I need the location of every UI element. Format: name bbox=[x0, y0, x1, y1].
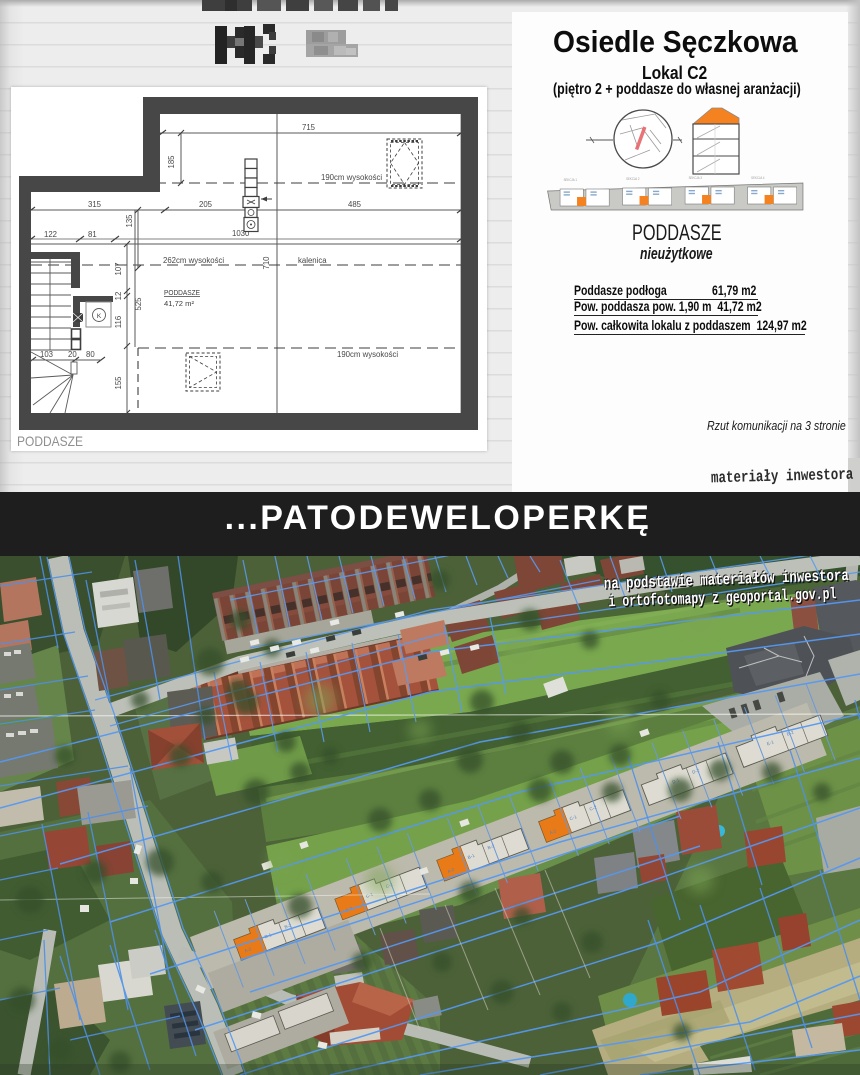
svg-text:190cm wysokości: 190cm wysokości bbox=[321, 173, 382, 182]
svg-text:PODDASZE: PODDASZE bbox=[164, 288, 200, 297]
svg-text:525: 525 bbox=[134, 297, 143, 311]
svg-text:185: 185 bbox=[167, 155, 176, 169]
svg-text:715: 715 bbox=[302, 123, 316, 132]
svg-text:K: K bbox=[97, 313, 102, 320]
svg-text:107: 107 bbox=[114, 262, 123, 275]
svg-text:262cm wysokości: 262cm wysokości bbox=[163, 256, 224, 265]
svg-text:190cm wysokości: 190cm wysokości bbox=[337, 350, 398, 359]
svg-text:20: 20 bbox=[68, 350, 77, 359]
svg-text:SEKCJA 1: SEKCJA 1 bbox=[564, 178, 578, 182]
svg-text:41,72 m²: 41,72 m² bbox=[164, 299, 195, 308]
svg-text:12: 12 bbox=[114, 292, 123, 301]
svg-text:315: 315 bbox=[88, 200, 102, 209]
svg-text:122: 122 bbox=[44, 230, 57, 239]
svg-text:135: 135 bbox=[125, 214, 134, 228]
svg-text:710: 710 bbox=[262, 256, 271, 270]
svg-text:SEKCJA 2: SEKCJA 2 bbox=[626, 177, 640, 181]
svg-text:116: 116 bbox=[114, 316, 123, 328]
svg-text:485: 485 bbox=[348, 200, 362, 209]
svg-text:SEKCJA 4: SEKCJA 4 bbox=[751, 176, 765, 180]
svg-text:205: 205 bbox=[199, 200, 213, 209]
svg-text:81: 81 bbox=[88, 230, 97, 239]
svg-text:80: 80 bbox=[86, 350, 95, 359]
svg-text:PODDASZE: PODDASZE bbox=[17, 433, 83, 449]
svg-text:155: 155 bbox=[114, 376, 123, 390]
svg-text:kalenica: kalenica bbox=[298, 256, 327, 265]
svg-text:SEKCJA 3: SEKCJA 3 bbox=[689, 176, 703, 180]
